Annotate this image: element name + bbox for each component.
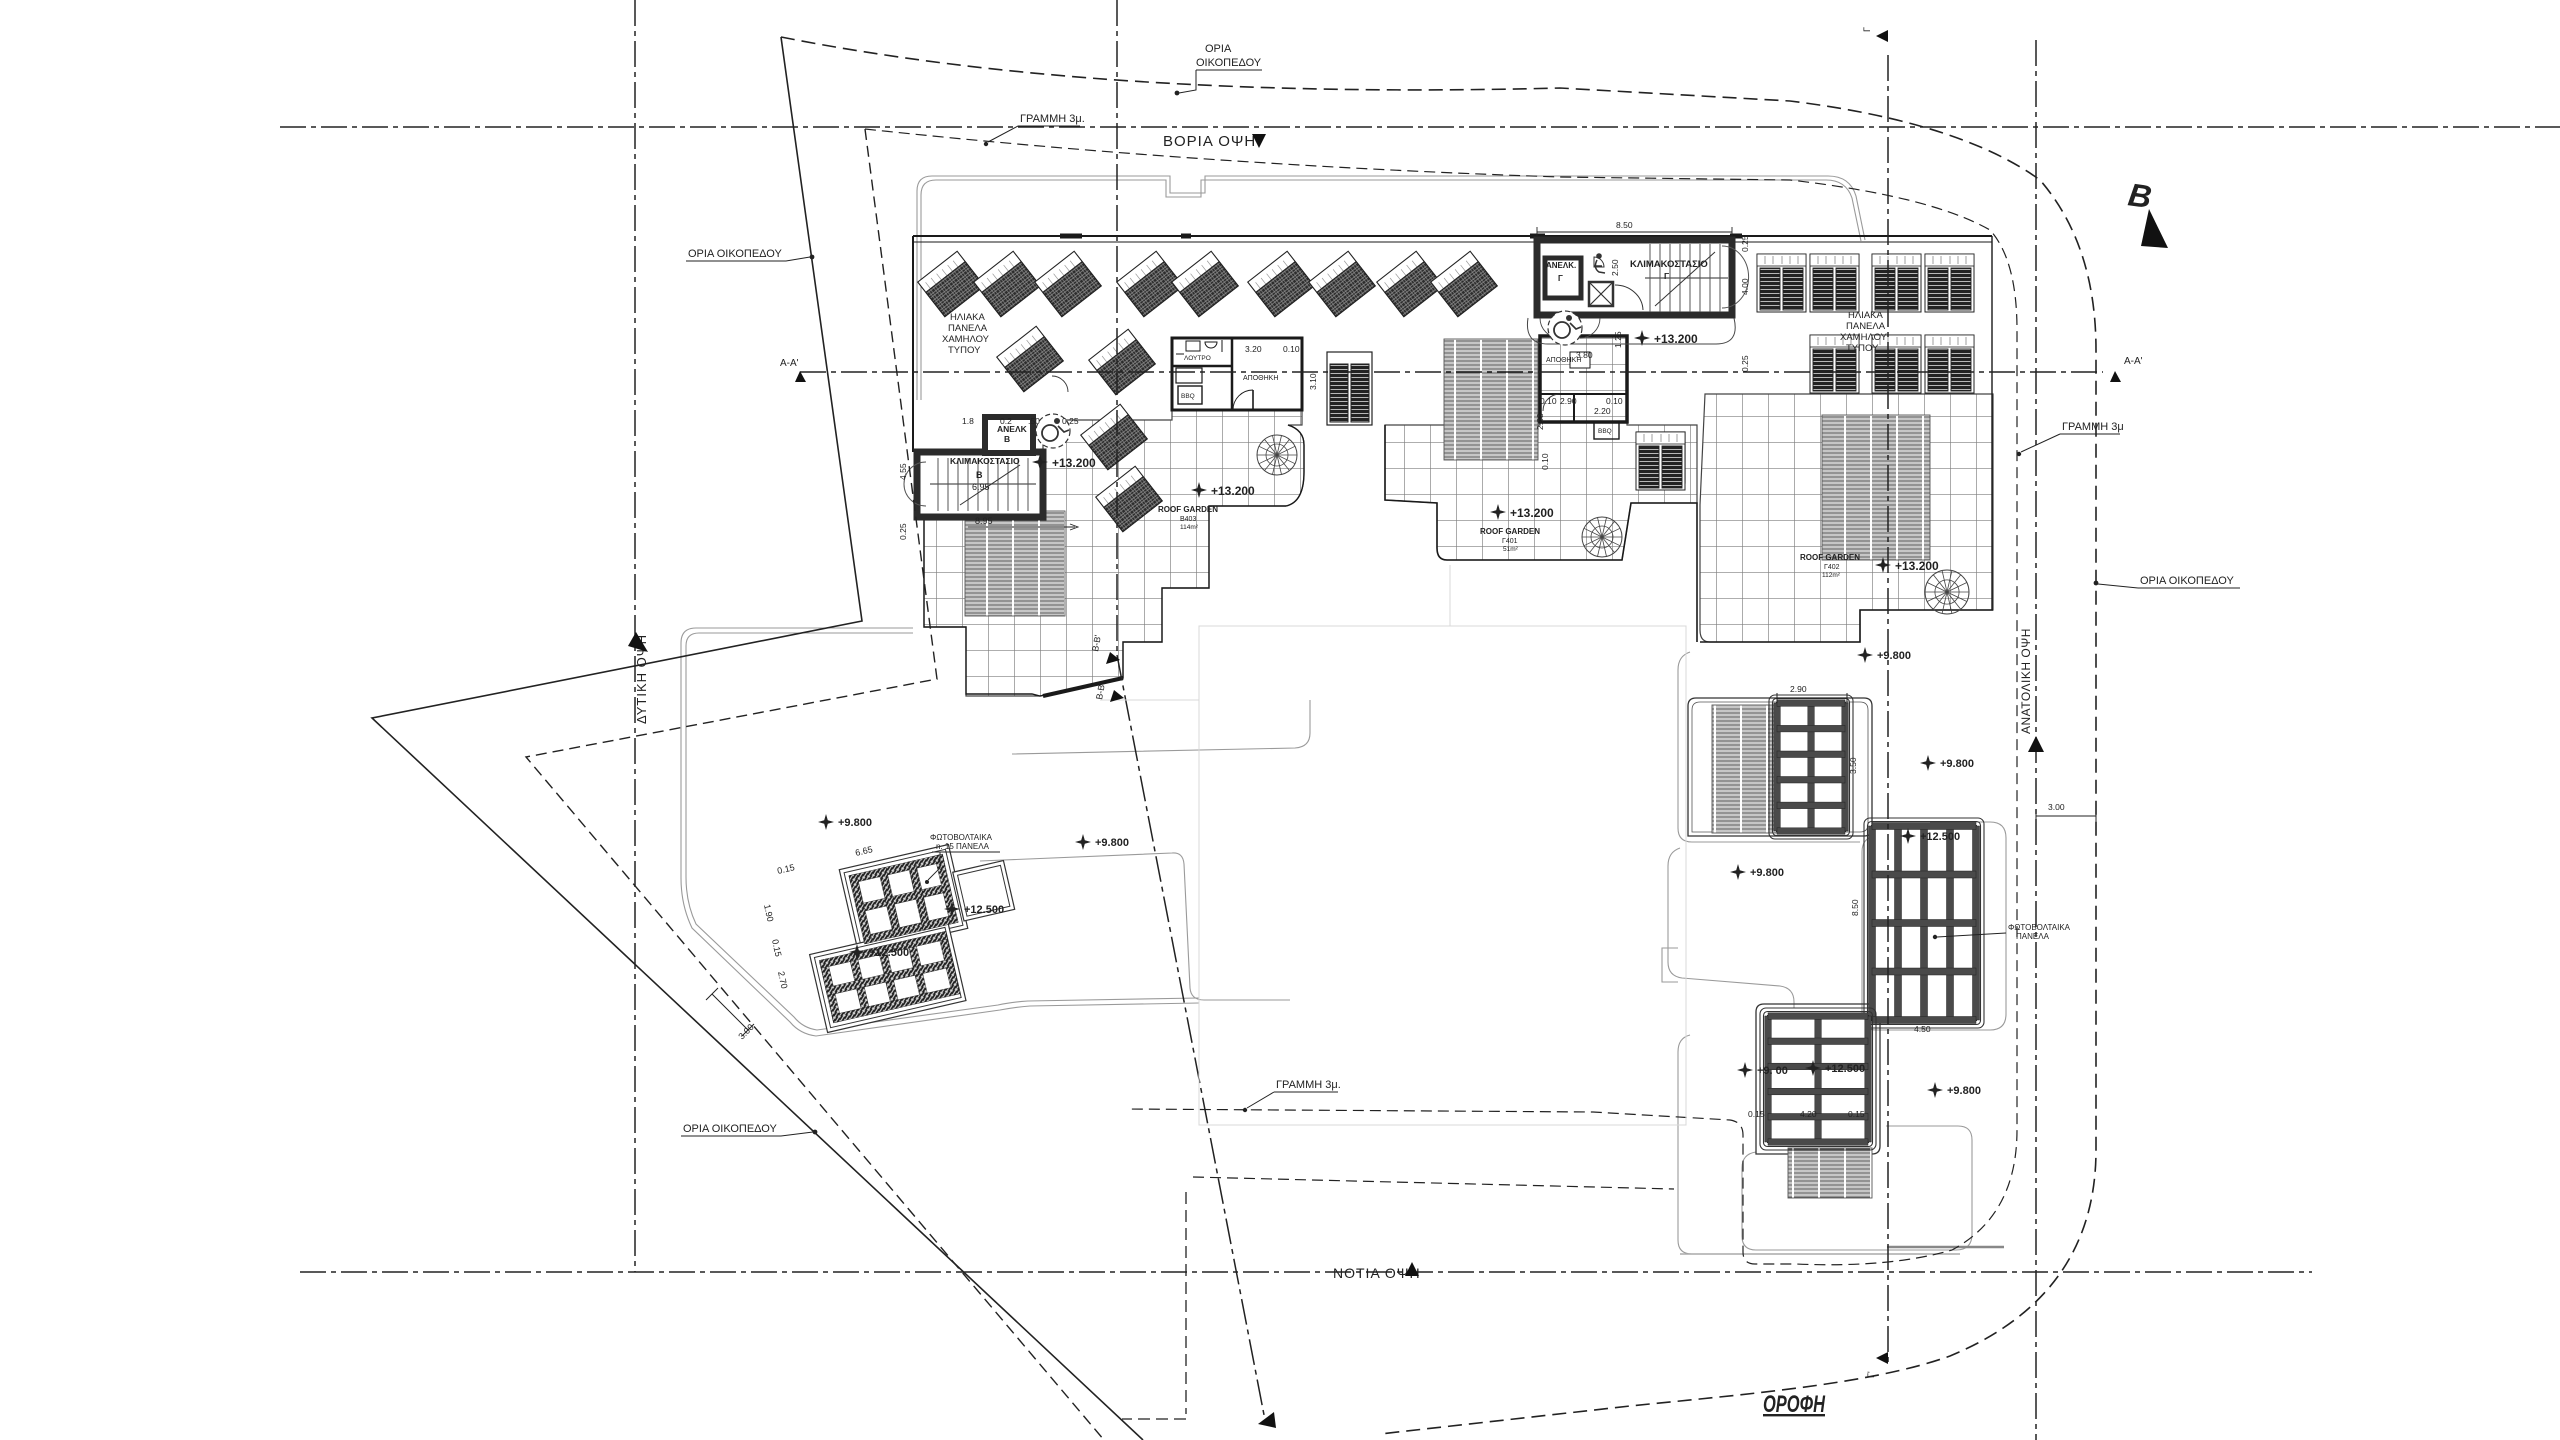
svg-text:ΤΥΠΟΥ: ΤΥΠΟΥ [948,345,981,356]
svg-text:0.25: 0.25 [898,523,908,540]
svg-text:+9.800: +9.800 [1940,758,1974,770]
svg-text:2.50: 2.50 [1610,259,1620,276]
svg-text:ΟΡΙΑ: ΟΡΙΑ [1205,43,1232,55]
svg-text:0.25: 0.25 [1740,235,1750,252]
svg-text:ROOF GARDEN: ROOF GARDEN [1800,553,1860,562]
svg-text:ROOF GARDEN: ROOF GARDEN [1480,527,1540,536]
svg-text:+9.800: +9.800 [1947,1085,1981,1097]
svg-text:112m²: 112m² [1822,572,1841,579]
svg-text:4.00: 4.00 [1740,278,1750,295]
svg-text:Γ: Γ [1862,27,1872,32]
svg-text:ΟΡΙΑ ΟΙΚΟΠΕΔΟΥ: ΟΡΙΑ ΟΙΚΟΠΕΔΟΥ [2140,575,2235,587]
svg-text:+9.800: +9.800 [838,817,872,829]
svg-text:n. 15 ΠΑΝΕΛΑ: n. 15 ΠΑΝΕΛΑ [936,842,990,851]
svg-text:2.90: 2.90 [1560,396,1577,406]
svg-text:+13.200: +13.200 [1510,506,1554,520]
svg-text:+12.500: +12.500 [1920,831,1960,843]
svg-text:A-A': A-A' [2124,356,2143,367]
svg-text:Γ: Γ [1664,271,1669,281]
svg-text:Β403: Β403 [1180,516,1196,523]
svg-text:1.25: 1.25 [1613,331,1623,348]
svg-text:3.00: 3.00 [2048,802,2065,812]
svg-text:ΑΝΑΤΟΛΙΚΗ ΟΨΗ: ΑΝΑΤΟΛΙΚΗ ΟΨΗ [2019,628,2033,734]
svg-text:0.25: 0.25 [1740,355,1750,372]
svg-text:Β: Β [976,470,983,480]
svg-text:8.50: 8.50 [1850,899,1860,916]
svg-text:ΟΡΟΦΗ: ΟΡΟΦΗ [1763,1391,1825,1418]
svg-text:8.50: 8.50 [1616,220,1633,230]
svg-text:ΧΑΜΗΛΟΥ: ΧΑΜΗΛΟΥ [942,334,990,345]
svg-text:6.95: 6.95 [972,482,990,492]
svg-text:3.10: 3.10 [1308,373,1318,390]
svg-text:+9.800: +9.800 [1877,650,1911,662]
svg-text:ΗΛΙΑΚΑ: ΗΛΙΑΚΑ [1848,310,1884,321]
svg-text:Γ401: Γ401 [1502,538,1518,545]
svg-text:ROOF GARDEN: ROOF GARDEN [1158,505,1218,514]
svg-text:ΦΩΤΟΒΟΛΤΑΙΚΑ: ΦΩΤΟΒΟΛΤΑΙΚΑ [2008,923,2071,932]
svg-text:ΑΝΕΛΚ.: ΑΝΕΛΚ. [1546,261,1576,270]
svg-text:ΟΙΚΟΠΕΔΟΥ: ΟΙΚΟΠΕΔΟΥ [1196,57,1262,69]
svg-text:+13.200: +13.200 [1211,484,1255,498]
svg-text:114m²: 114m² [1180,524,1199,531]
svg-text:0.15: 0.15 [1748,1109,1765,1119]
svg-text:ΓΡΑΜΜΗ 3μ.: ΓΡΑΜΜΗ 3μ. [1020,113,1085,125]
svg-text:0.10: 0.10 [1540,396,1557,406]
svg-text:.50: .50 [1028,416,1040,426]
svg-text:2.88: 2.88 [1535,413,1545,430]
svg-text:ΒΟΡΙΑ ΟΨΗ: ΒΟΡΙΑ ΟΨΗ [1163,133,1256,150]
svg-text:ΛΟΥΤΡΟ: ΛΟΥΤΡΟ [1184,355,1211,362]
svg-text:ΦΩΤΟΒΟΛΤΑΙΚΑ: ΦΩΤΟΒΟΛΤΑΙΚΑ [930,833,993,842]
svg-text:Γ402: Γ402 [1824,564,1840,571]
svg-text:3.50: 3.50 [1848,757,1858,774]
svg-text:+13.200: +13.200 [1052,456,1096,470]
svg-text:+13.200: +13.200 [1654,332,1698,346]
svg-text:0.15: 0.15 [1848,1109,1865,1119]
svg-text:A-A': A-A' [780,358,799,369]
svg-text:0.10: 0.10 [1606,396,1623,406]
svg-text:ΓΡΑΜΜΗ 3μ: ΓΡΑΜΜΗ 3μ [2062,421,2124,433]
svg-text:0.10: 0.10 [1283,344,1300,354]
svg-text:1.8: 1.8 [962,416,974,426]
svg-text:BBQ: BBQ [1181,393,1195,400]
svg-text:+12.500: +12.500 [964,904,1004,916]
svg-text:8.95: 8.95 [975,516,993,526]
svg-text:ΠΑΝΕΛΑ: ΠΑΝΕΛΑ [2016,932,2050,941]
svg-text:ΚΛΙΜΑΚΟΣΤΑΣΙΟ: ΚΛΙΜΑΚΟΣΤΑΣΙΟ [1630,259,1708,270]
svg-text:ΠΑΝΕΛΑ: ΠΑΝΕΛΑ [1846,321,1886,332]
svg-text:ΠΑΝΕΛΑ: ΠΑΝΕΛΑ [948,323,988,334]
svg-text:+13.200: +13.200 [1895,559,1939,573]
svg-text:ΤΥΠΟΥ: ΤΥΠΟΥ [1846,343,1879,354]
svg-text:+12.500: +12.500 [869,947,909,959]
svg-text:BBQ: BBQ [1598,428,1612,435]
svg-text:ΓΡΑΜΜΗ 3μ.: ΓΡΑΜΜΗ 3μ. [1276,1079,1341,1091]
svg-text:51m²: 51m² [1503,546,1519,553]
svg-text:Β: Β [1004,434,1010,444]
svg-text:+9.800: +9.800 [1095,837,1129,849]
svg-text:+12.500: +12.500 [1825,1063,1865,1075]
svg-text:ΧΑΜΗΛΟΥ: ΧΑΜΗΛΟΥ [1840,332,1888,343]
svg-text:Γ: Γ [1558,274,1563,283]
svg-text:0.10: 0.10 [1540,453,1550,470]
svg-text:4.20: 4.20 [1800,1109,1817,1119]
svg-text:Γ': Γ' [1866,1371,1876,1378]
svg-text:ΑΠΟΘΗΚΗ: ΑΠΟΘΗΚΗ [1243,375,1278,382]
svg-text:0.25: 0.25 [1062,416,1079,426]
svg-text:ΗΛΙΑΚΑ: ΗΛΙΑΚΑ [950,312,986,323]
svg-text:3.20: 3.20 [1245,344,1262,354]
svg-text:4.55: 4.55 [898,463,908,480]
svg-text:2.20: 2.20 [1594,406,1611,416]
svg-text:ΟΡΙΑ ΟΙΚΟΠΕΔΟΥ: ΟΡΙΑ ΟΙΚΟΠΕΔΟΥ [688,248,783,260]
svg-text:3.80: 3.80 [1576,350,1593,360]
svg-text:4.50: 4.50 [1914,1024,1931,1034]
svg-text:ΟΡΙΑ ΟΙΚΟΠΕΔΟΥ: ΟΡΙΑ ΟΙΚΟΠΕΔΟΥ [683,1123,778,1135]
svg-text:2.90: 2.90 [1790,684,1807,694]
svg-text:ΚΛΙΜΑΚΟΣΤΑΣΙΟ: ΚΛΙΜΑΚΟΣΤΑΣΙΟ [950,456,1020,466]
svg-text:+9. 00: +9. 00 [1757,1065,1788,1077]
svg-text:0.2: 0.2 [1000,416,1012,426]
svg-text:+9.800: +9.800 [1750,867,1784,879]
